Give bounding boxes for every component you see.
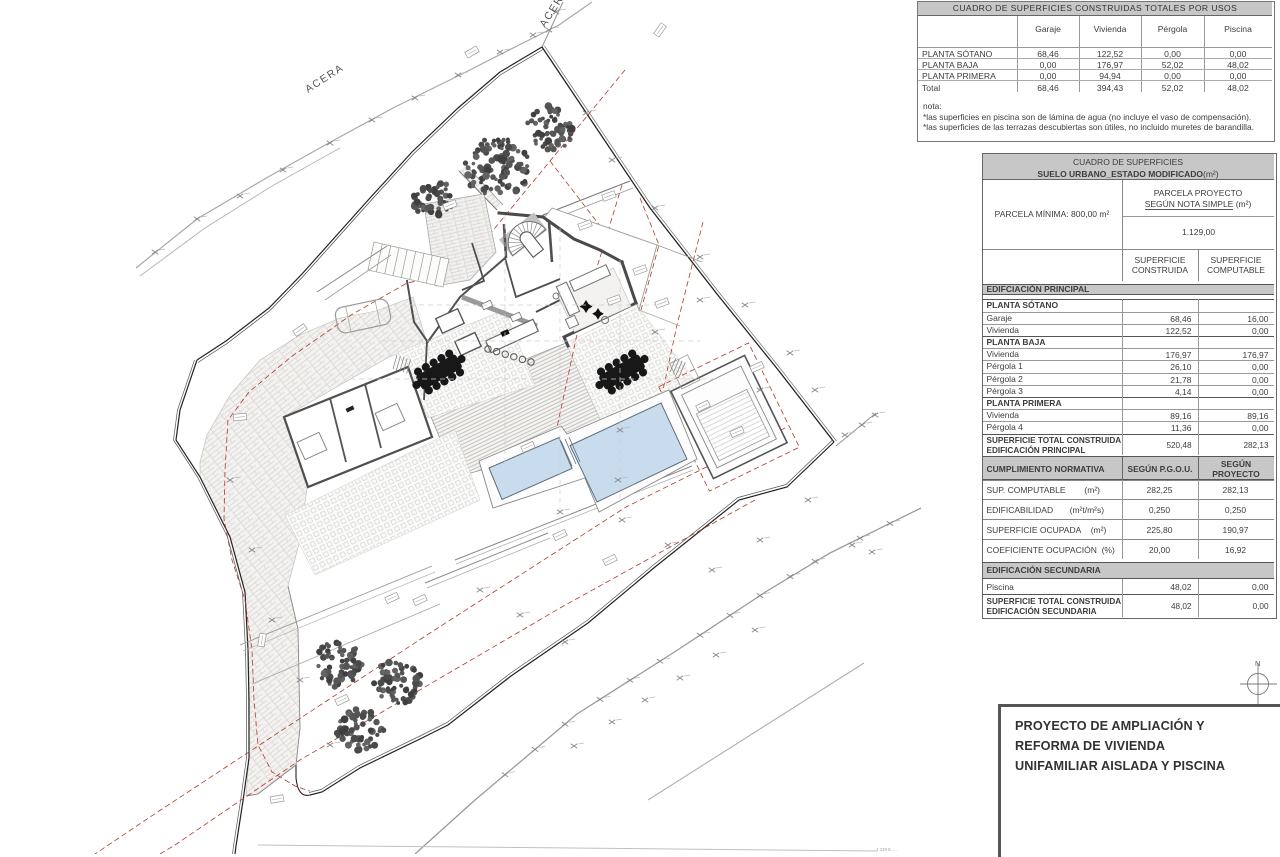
svg-text:N: N — [1255, 659, 1260, 668]
svg-text:1 119 8 ....: 1 119 8 .... — [876, 847, 897, 852]
